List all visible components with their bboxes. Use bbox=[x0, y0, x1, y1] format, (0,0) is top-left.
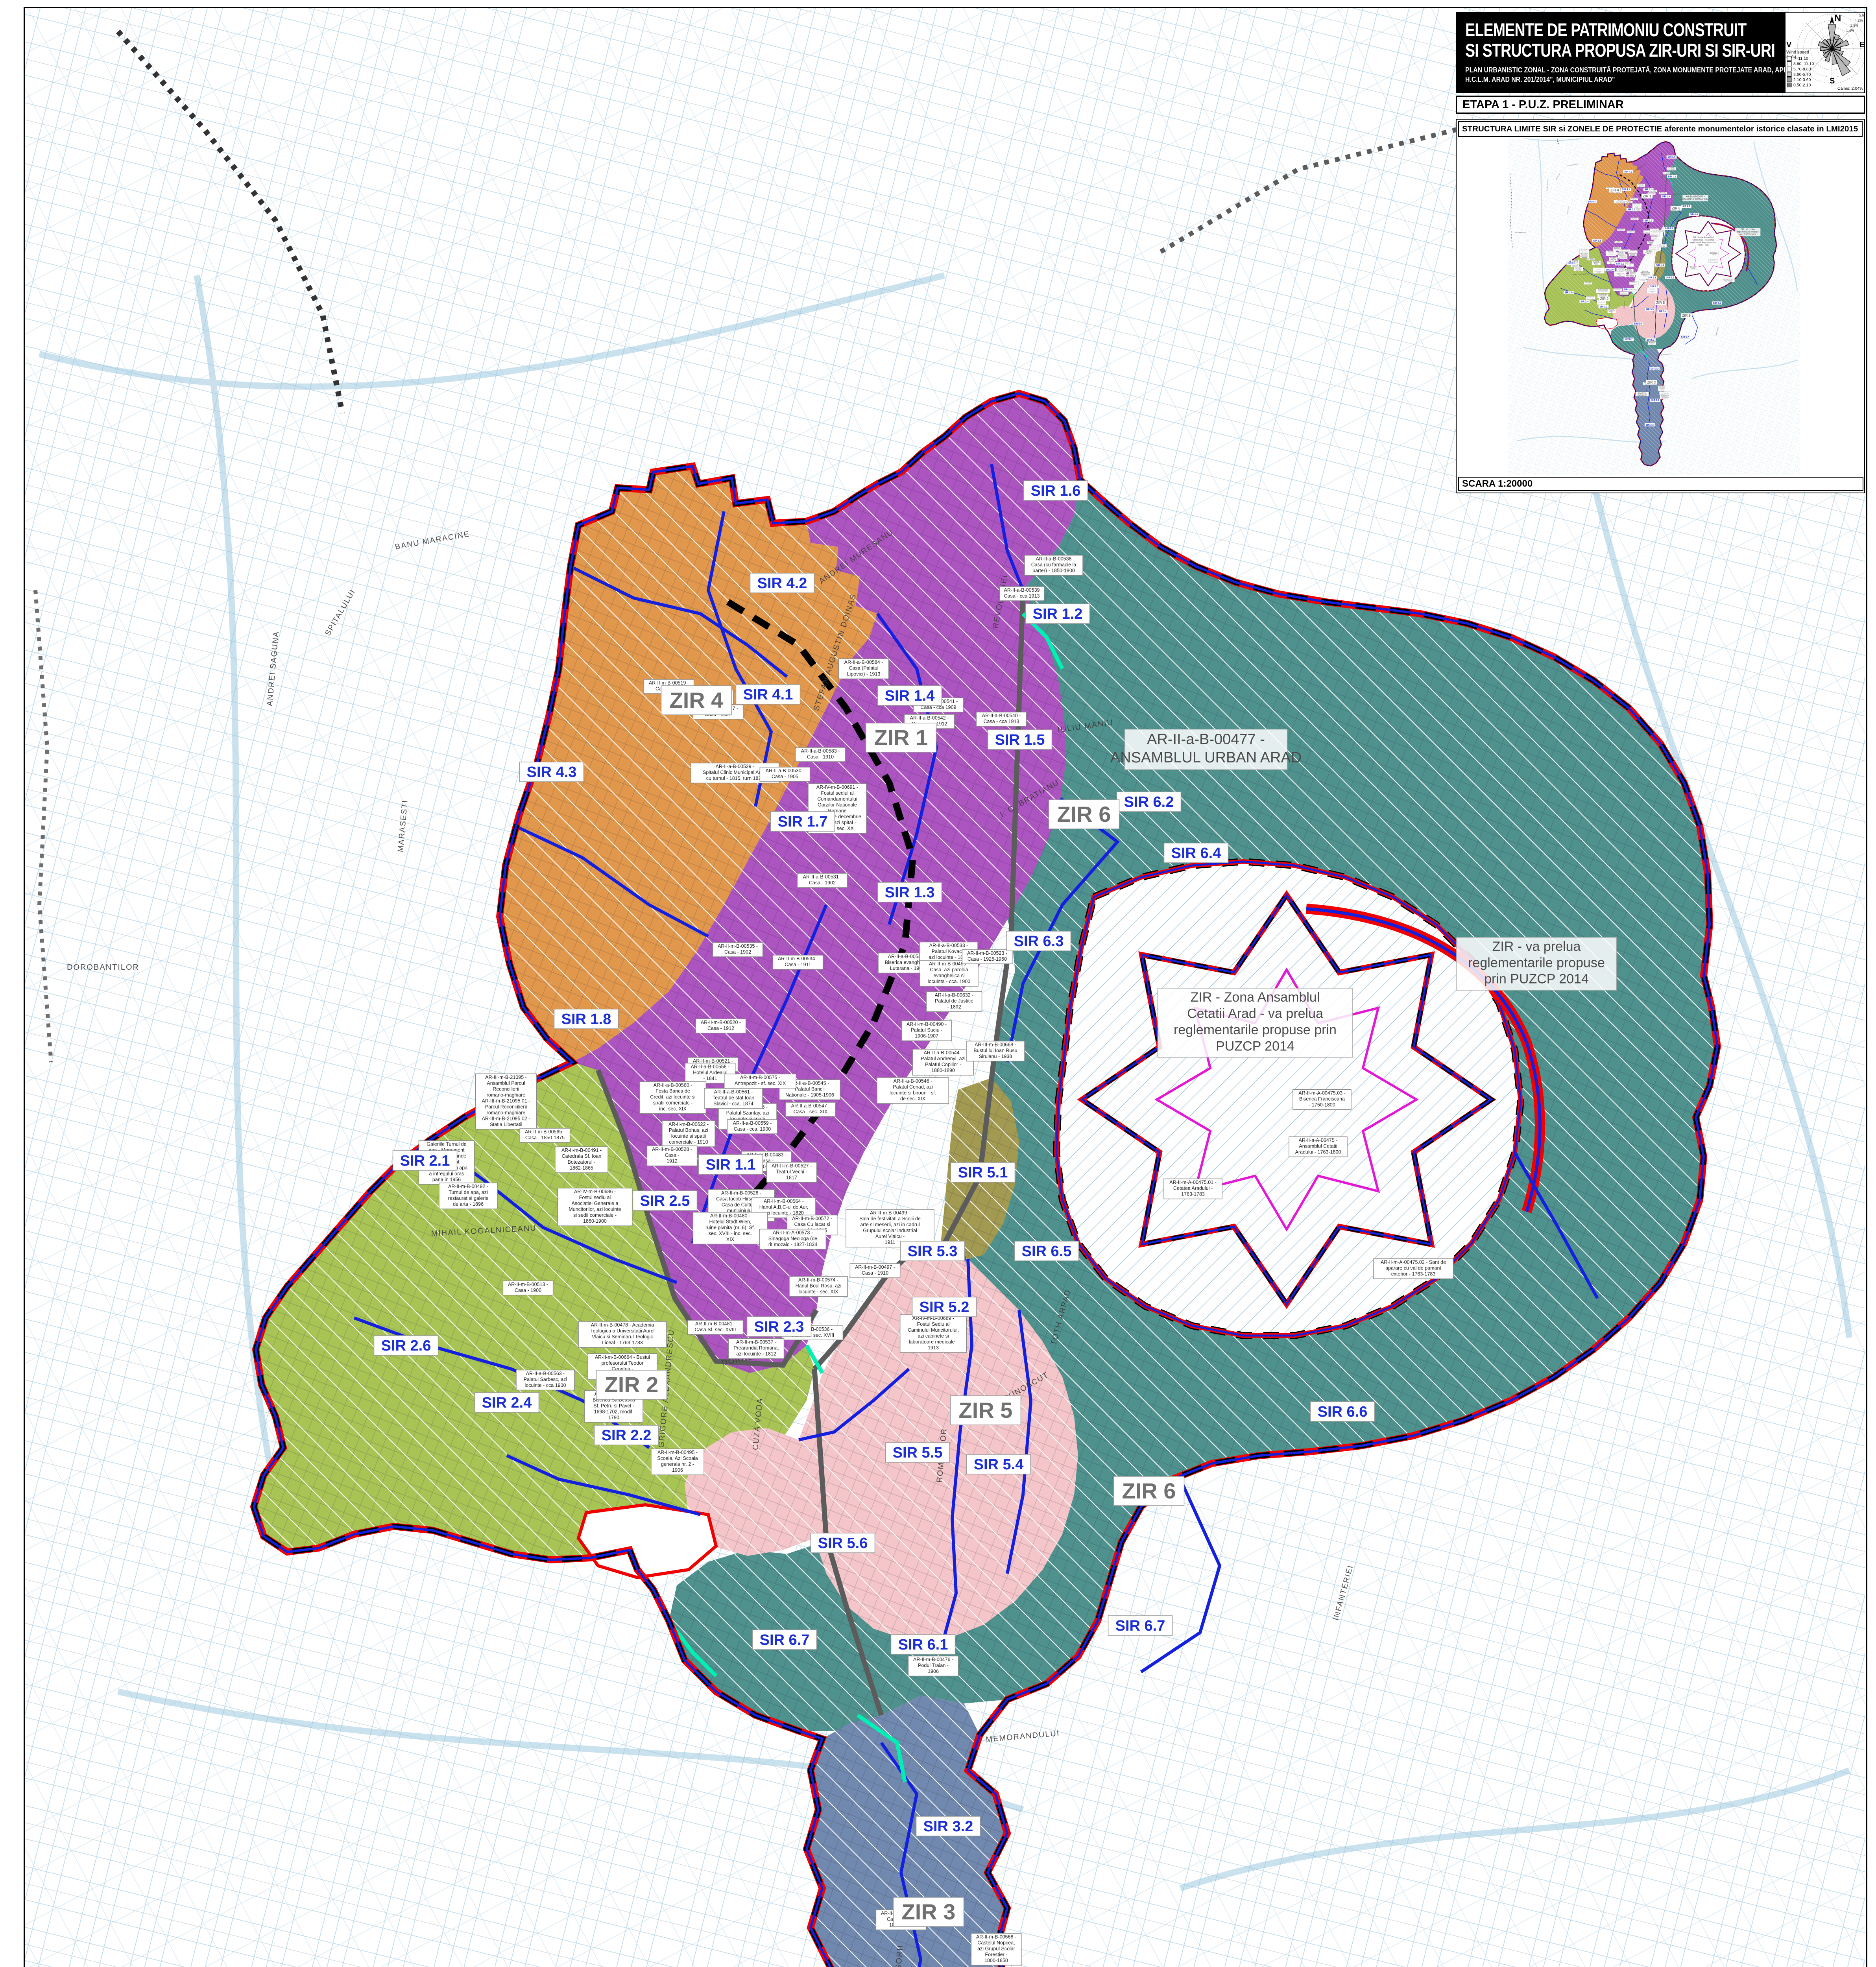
wr-ring-label: 5.6% bbox=[1859, 13, 1864, 17]
stage-bar: ETAPA 1 - P.U.Z. PRELIMINAR bbox=[1456, 96, 1865, 114]
wr-bin-swatch bbox=[1787, 83, 1791, 87]
plan-sheet: ANDREI MURESANUSTEFAN AUGUSTIN DOINASREV… bbox=[0, 0, 1876, 1967]
wr-v: V bbox=[1786, 41, 1792, 49]
wr-bin-swatch bbox=[1787, 62, 1791, 66]
windrose-panel: N E S V 1.4%2.8%4.2%5.6%7% Wind speed (m… bbox=[1785, 12, 1865, 93]
wr-calms: Calms: 2.04% bbox=[1837, 86, 1863, 91]
subtitle: PLAN URBANISTIC ZONAL - ZONA CONSTRUITĂ … bbox=[1465, 65, 1746, 84]
title-panel: ELEMENTE DE PATRIMONIU CONSTRUIT SI STRU… bbox=[1456, 12, 1785, 93]
wr-n: N bbox=[1834, 13, 1841, 24]
wr-bin-swatch bbox=[1787, 72, 1791, 77]
main-title-line1: ELEMENTE DE PATRIMONIU CONSTRUIT bbox=[1465, 20, 1720, 40]
subtitle-line1: PLAN URBANISTIC ZONAL - ZONA CONSTRUITĂ … bbox=[1465, 65, 1746, 75]
windrose-chart: N E S V 1.4%2.8%4.2%5.6%7% Wind speed (m… bbox=[1786, 13, 1864, 92]
wr-bin-swatch bbox=[1787, 67, 1791, 71]
main-title-line2: SI STRUCTURA PROPUSA ZIR-URI SI SIR-URI bbox=[1465, 40, 1720, 61]
subtitle-line2: H.C.L.M. ARAD NR. 201/2014", MUNICIPIUL … bbox=[1465, 75, 1746, 84]
wr-bin-swatch bbox=[1787, 77, 1791, 82]
wr-title: Wind speed bbox=[1786, 50, 1809, 55]
wr-bin-label: 3.60-5.70 bbox=[1793, 72, 1811, 77]
wr-ring-label: 4.2% bbox=[1855, 18, 1863, 22]
wr-bin-label: 2.10-3.60 bbox=[1793, 77, 1811, 82]
inset-map bbox=[1458, 138, 1863, 475]
inset-panel: STRUCTURA LIMITE SIR si ZONELE DE PROTEC… bbox=[1456, 119, 1865, 493]
wr-bin-label: >=11.10 bbox=[1793, 56, 1808, 61]
wr-bin-label: 5.70-8.80 bbox=[1793, 67, 1811, 72]
inset-header: STRUCTURA LIMITE SIR si ZONELE DE PROTEC… bbox=[1458, 121, 1863, 137]
wr-e: E bbox=[1859, 41, 1864, 49]
wr-bin-label: 8.80 -11.10 bbox=[1793, 62, 1814, 66]
inset-scale-bar: SCARA 1:20000 bbox=[1458, 477, 1863, 491]
wr-ring-label: 2.8% bbox=[1850, 24, 1859, 28]
wr-bin-swatch bbox=[1787, 56, 1791, 61]
wr-bin-label: 0.50-2.10 bbox=[1793, 83, 1811, 88]
wr-s: S bbox=[1830, 77, 1835, 85]
wr-ring-label: 1.4% bbox=[1846, 29, 1854, 33]
